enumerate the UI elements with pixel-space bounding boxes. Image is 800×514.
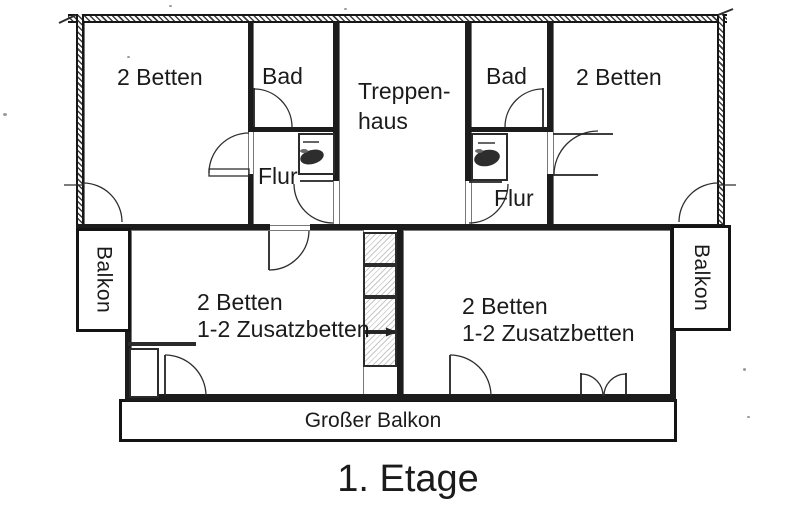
label-treppenhaus-line2: haus xyxy=(358,106,450,136)
door-leaf-room-tl xyxy=(209,169,249,176)
double-door-arc-right xyxy=(604,374,626,396)
door-arc-balcony-left xyxy=(83,183,122,222)
corner-stroke-top-right xyxy=(718,9,733,15)
label-room-bottom-right-line1: 2 Betten xyxy=(462,293,635,320)
door-arc-room-tl xyxy=(209,133,249,173)
door-arc-room-bl-balcony xyxy=(165,355,206,396)
label-flur-left: Flur xyxy=(258,163,298,190)
door-arc-balcony-right xyxy=(679,183,718,222)
double-door-arc-left xyxy=(581,374,603,396)
door-arc-bad-left xyxy=(254,89,292,127)
door-arc-room-bl-entry xyxy=(269,231,309,270)
floor-plan: Balkon Balkon Großer Balkon xyxy=(0,0,800,514)
label-room-top-left: 2 Betten xyxy=(117,64,203,91)
label-bad-left: Bad xyxy=(262,63,303,90)
leader-arrow-icon xyxy=(369,328,397,337)
sink-icon-right xyxy=(473,143,502,169)
label-treppenhaus: Treppen- haus xyxy=(358,76,450,136)
label-room-bottom-left: 2 Betten 1-2 Zusatzbetten xyxy=(197,289,370,343)
page-title: 1. Etage xyxy=(8,458,800,501)
label-room-bottom-right-line2: 1-2 Zusatzbetten xyxy=(462,320,635,347)
door-arc-room-br-balcony xyxy=(450,355,491,396)
label-bad-right: Bad xyxy=(486,63,527,90)
corner-stroke-top-left xyxy=(59,15,76,23)
label-room-bottom-left-line1: 2 Betten xyxy=(197,289,370,316)
label-room-bottom-left-line2: 1-2 Zusatzbetten xyxy=(197,316,370,343)
sink-icon-left xyxy=(299,142,326,167)
label-room-top-right: 2 Betten xyxy=(576,64,662,91)
door-arc-room-tr xyxy=(554,131,598,175)
door-arc-bad-right xyxy=(505,89,543,127)
label-room-bottom-right: 2 Betten 1-2 Zusatzbetten xyxy=(462,293,635,347)
door-arc-flur-left xyxy=(294,184,333,223)
label-treppenhaus-line1: Treppen- xyxy=(358,76,450,106)
label-flur-right: Flur xyxy=(494,185,534,212)
